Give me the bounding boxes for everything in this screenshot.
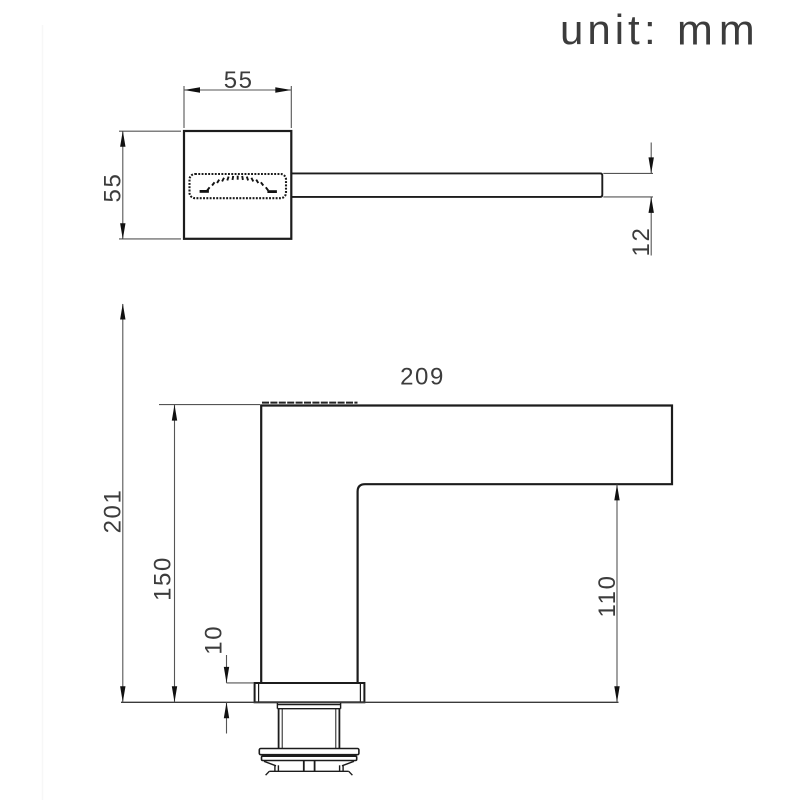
- svg-text:55: 55: [224, 67, 254, 94]
- svg-text::: :: [644, 6, 656, 53]
- svg-text:10: 10: [201, 625, 228, 655]
- svg-text:mm: mm: [677, 7, 761, 55]
- svg-text:12: 12: [628, 227, 655, 257]
- svg-text:unit: unit: [560, 6, 644, 53]
- svg-text:209: 209: [400, 364, 445, 391]
- svg-text:150: 150: [150, 556, 177, 601]
- svg-text:55: 55: [100, 173, 127, 203]
- svg-text:110: 110: [594, 574, 621, 617]
- svg-text:201: 201: [100, 489, 127, 534]
